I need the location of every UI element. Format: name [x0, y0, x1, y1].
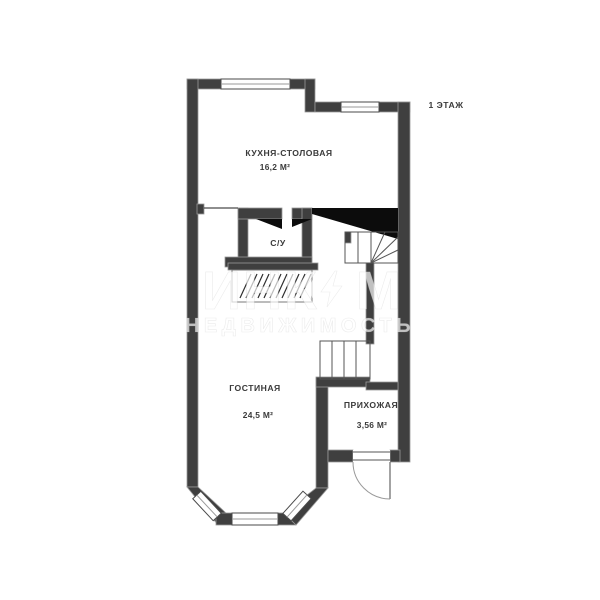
stairs-above-cut-mark [312, 208, 398, 239]
wall-segment [315, 102, 341, 112]
room-label-bathroom: С/У [270, 238, 286, 248]
stair-tread [371, 232, 385, 263]
stair-tread [371, 237, 398, 263]
lower-staircase-flight [320, 341, 370, 379]
bathroom-wall [238, 208, 282, 219]
watermark-brand-right: М [356, 261, 403, 321]
wall-segment [328, 450, 353, 462]
page: КУХНЯ-СТОЛОВАЯ 16,2 М² С/У ГОСТИНАЯ 24,5… [0, 0, 600, 600]
room-label-living: ГОСТИНАЯ [229, 383, 280, 393]
wall-segment [390, 450, 400, 462]
kitchen-window [221, 79, 290, 89]
wall-segment [366, 382, 398, 390]
watermark-brand-left: ИНК [202, 261, 319, 321]
room-area-hallway: 3,56 М² [357, 420, 388, 430]
stair-outline [320, 341, 370, 379]
bathroom-door-leaf-left [256, 219, 282, 229]
bay-window-bottom [232, 513, 278, 525]
room-area-kitchen: 16,2 М² [260, 162, 291, 172]
wall-nub [197, 204, 204, 214]
wall-segment [305, 79, 315, 112]
room-label-kitchen: КУХНЯ-СТОЛОВАЯ [245, 148, 332, 158]
floor-label: 1 ЭТАЖ [429, 100, 464, 110]
watermark: ИНК М НЕДВИЖИМОСТЬ [185, 261, 415, 337]
stair-newel-nub [345, 232, 351, 243]
room-area-living: 24,5 М² [243, 410, 274, 420]
wall-segment [187, 79, 198, 487]
kitchen-window-2 [341, 102, 379, 112]
watermark-lightning-icon [321, 271, 342, 307]
room-label-hallway: ПРИХОЖАЯ [344, 400, 398, 410]
entrance-door-arc [353, 462, 390, 499]
entrance-door [353, 450, 390, 499]
watermark-subtitle: НЕДВИЖИМОСТЬ [185, 315, 415, 337]
wall-segment [316, 378, 328, 488]
floor-plan: КУХНЯ-СТОЛОВАЯ 16,2 М² С/У ГОСТИНАЯ 24,5… [0, 0, 600, 600]
